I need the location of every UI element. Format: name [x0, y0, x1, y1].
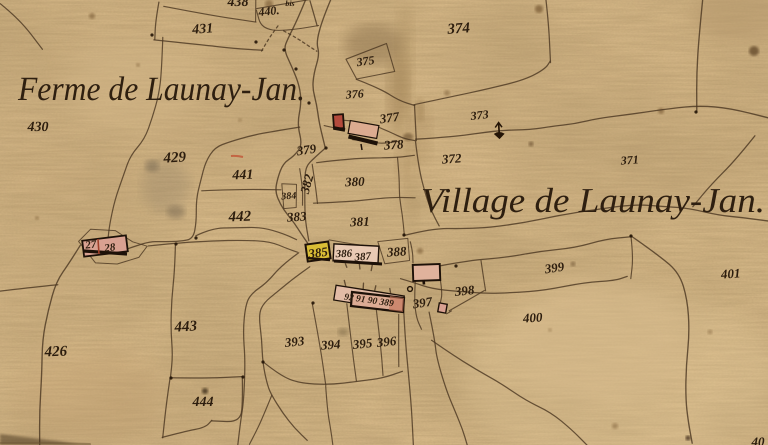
svg-text:430: 430: [27, 120, 49, 135]
svg-text:Village de Launay-Jan.: Village de Launay-Jan.: [421, 181, 765, 220]
svg-text:386: 386: [334, 248, 352, 261]
svg-text:388: 388: [385, 243, 407, 259]
svg-text:378: 378: [382, 136, 404, 152]
svg-text:440.: 440.: [257, 3, 280, 19]
svg-text:394: 394: [319, 336, 341, 352]
svg-text:384: 384: [280, 190, 297, 202]
svg-text:426: 426: [43, 344, 68, 361]
svg-text:380: 380: [344, 174, 366, 190]
svg-text:Ferme de Launay-Jan.: Ferme de Launay-Jan.: [17, 71, 305, 108]
svg-text:381: 381: [349, 214, 370, 230]
svg-text:438: 438: [227, 0, 249, 10]
svg-text:399: 399: [543, 259, 566, 277]
svg-text:444: 444: [192, 395, 214, 410]
svg-text:376: 376: [344, 86, 364, 101]
svg-text:431: 431: [191, 21, 214, 37]
svg-text:374: 374: [446, 20, 471, 38]
svg-text:372: 372: [440, 150, 462, 166]
svg-text:385: 385: [306, 244, 329, 262]
svg-text:397: 397: [411, 294, 434, 312]
svg-text:393: 393: [283, 333, 305, 350]
svg-text:398: 398: [453, 282, 475, 299]
svg-text:28: 28: [103, 241, 117, 254]
svg-text:373: 373: [469, 107, 489, 123]
svg-text:400: 400: [521, 309, 543, 325]
svg-text:395: 395: [351, 335, 373, 352]
svg-text:383: 383: [285, 208, 307, 224]
svg-text:401: 401: [719, 265, 740, 281]
svg-text:441: 441: [231, 168, 254, 184]
svg-text:379: 379: [295, 141, 318, 159]
svg-text:40: 40: [751, 434, 766, 445]
svg-text:27: 27: [84, 238, 98, 251]
svg-text:442: 442: [227, 209, 252, 226]
svg-text:371: 371: [619, 152, 639, 167]
svg-text:396: 396: [375, 333, 397, 350]
svg-text:bis: bis: [285, 0, 294, 8]
svg-text:443: 443: [173, 318, 198, 335]
svg-text:387: 387: [353, 250, 372, 263]
svg-text:375: 375: [355, 53, 376, 70]
svg-text:429: 429: [162, 149, 187, 166]
svg-text:377: 377: [378, 109, 401, 127]
